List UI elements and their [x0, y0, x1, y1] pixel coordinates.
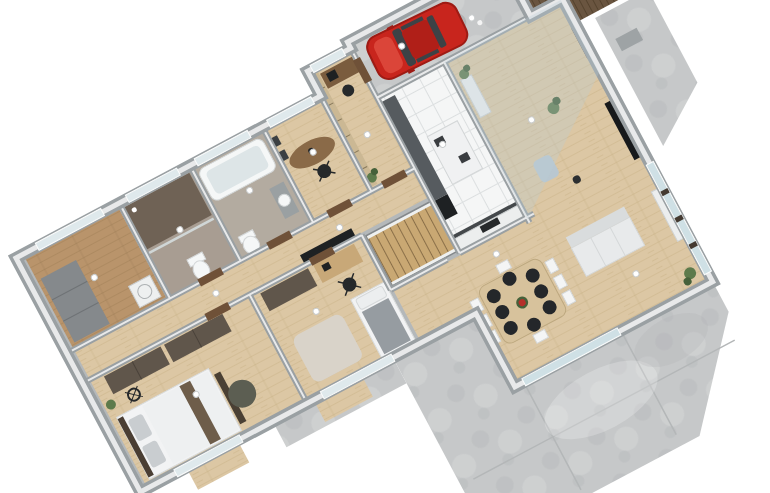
- floorplan-svg: [0, 0, 770, 493]
- isometric-plan: [0, 0, 770, 493]
- floorplan-render: [0, 0, 770, 493]
